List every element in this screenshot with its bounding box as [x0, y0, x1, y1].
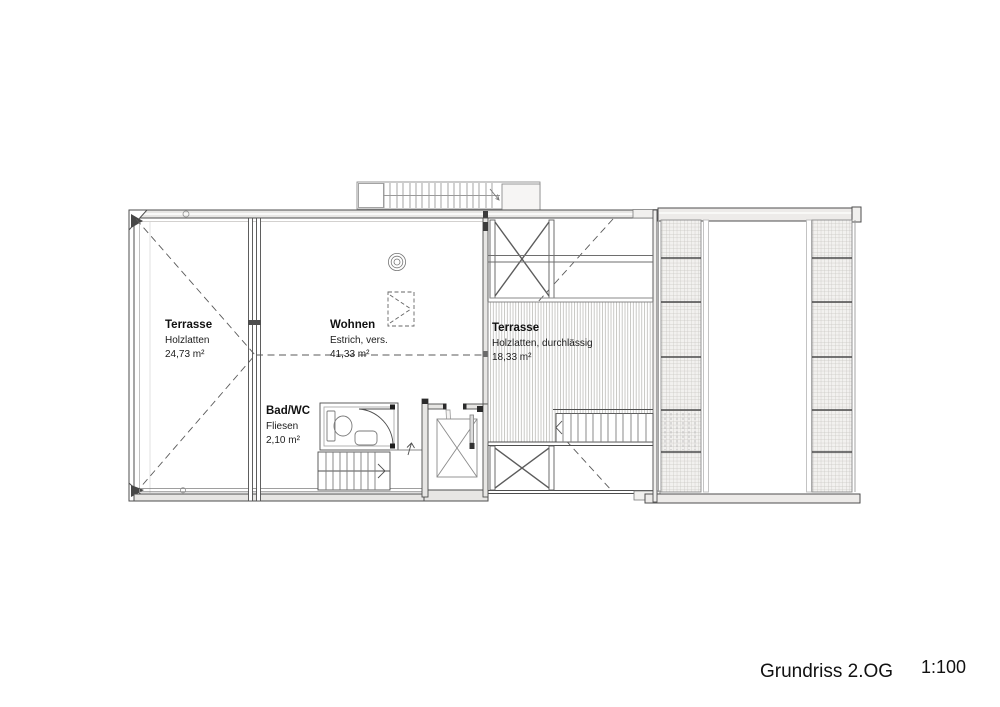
room-name: Terrasse — [492, 321, 593, 335]
room-area: 41,33 m² — [330, 348, 388, 362]
terrace-stair — [553, 410, 653, 443]
room-area: 24,73 m² — [165, 348, 212, 362]
left-edge — [129, 210, 150, 501]
mesh-screen-left — [659, 220, 709, 492]
room-name: Bad/WC — [266, 404, 310, 418]
room-area: 2,10 m² — [266, 434, 310, 448]
bottom-wall-band — [134, 488, 860, 503]
drawing-title: Grundriss 2.OG — [760, 661, 893, 683]
mesh-screen-right — [807, 220, 856, 492]
room-label-living: Wohnen Estrich, vers. 41,33 m² — [330, 318, 388, 361]
wall-living-right — [483, 218, 488, 404]
room-finish: Holzlatten, durchlässig — [492, 337, 593, 351]
elevator — [422, 399, 488, 497]
room-area: 18,33 m² — [492, 351, 593, 365]
exterior-stair-top — [357, 182, 540, 212]
cross-brace-upper — [490, 220, 554, 298]
drawing-scale: 1:100 — [921, 657, 966, 678]
wall-terrace-living — [248, 218, 261, 501]
room-name: Wohnen — [330, 318, 388, 332]
living-room-features — [388, 253, 414, 326]
room-finish: Estrich, vers. — [330, 334, 388, 348]
elevator-car — [437, 415, 477, 477]
skylight-opening — [388, 292, 414, 326]
room-finish: Fliesen — [266, 420, 310, 434]
room-label-bath: Bad/WC Fliesen 2,10 m² — [266, 404, 310, 447]
room-label-terrace-right: Terrasse Holzlatten, durchlässig 18,33 m… — [492, 321, 593, 364]
room-finish: Holzlatten — [165, 334, 212, 348]
room-label-terrace-left: Terrasse Holzlatten 24,73 m² — [165, 318, 212, 361]
cross-brace-lower — [490, 446, 554, 490]
bathroom — [320, 403, 398, 450]
mesh-screens — [659, 220, 856, 492]
floor-plan-sheet: Terrasse Holzlatten 24,73 m² Wohnen Estr… — [0, 0, 1000, 707]
room-name: Terrasse — [165, 318, 212, 332]
walkline-arrow — [407, 443, 415, 455]
